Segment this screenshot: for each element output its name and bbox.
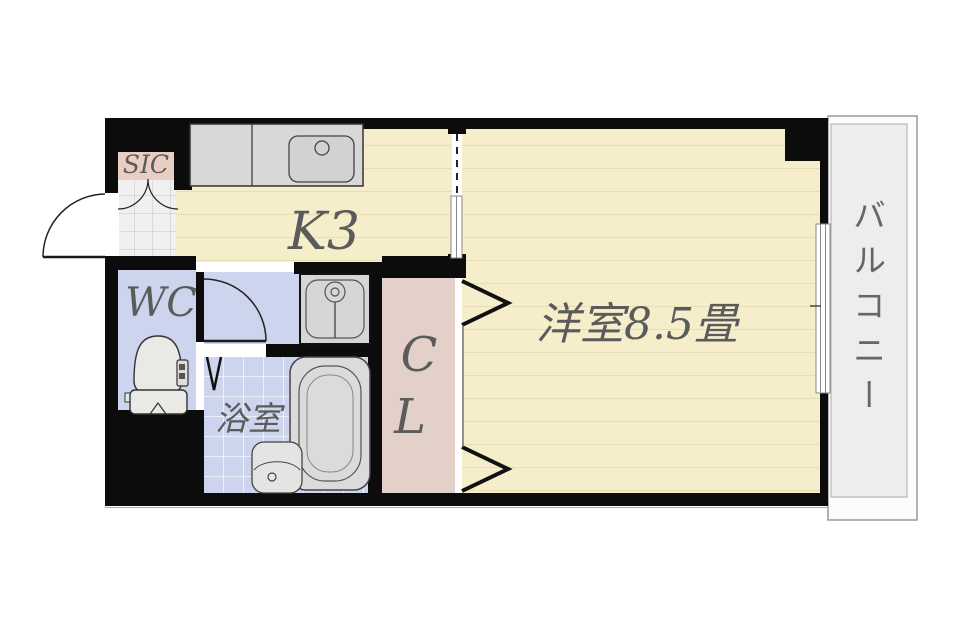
floorplan-svg: SIC K3 WC 浴室 C L 洋室8.5畳 バルコニー: [0, 0, 960, 622]
closet-floor: [382, 278, 455, 495]
kitchen-label: K3: [287, 202, 360, 262]
kitchen-sink: [289, 136, 354, 182]
kitchen-counter: [190, 124, 363, 186]
bath-label: 浴室: [215, 399, 285, 438]
wash-basin: [252, 442, 302, 493]
washing-machine-pan: [300, 274, 370, 344]
wc-label: WC: [125, 280, 197, 326]
balcony-label: バルコニー: [848, 198, 887, 423]
main-room-label: 洋室8.5畳: [536, 299, 741, 350]
closet-label-line1: C: [401, 327, 438, 383]
genkan-tile-grid: [117, 178, 180, 260]
floorplan-page: SIC K3 WC 浴室 C L 洋室8.5畳 バルコニー: [0, 0, 960, 622]
entrance-opening: [103, 193, 119, 256]
closet-label-line2: L: [393, 389, 426, 445]
hall-floor: [204, 272, 300, 344]
openings: [103, 193, 119, 256]
sic-label: SIC: [123, 150, 169, 179]
